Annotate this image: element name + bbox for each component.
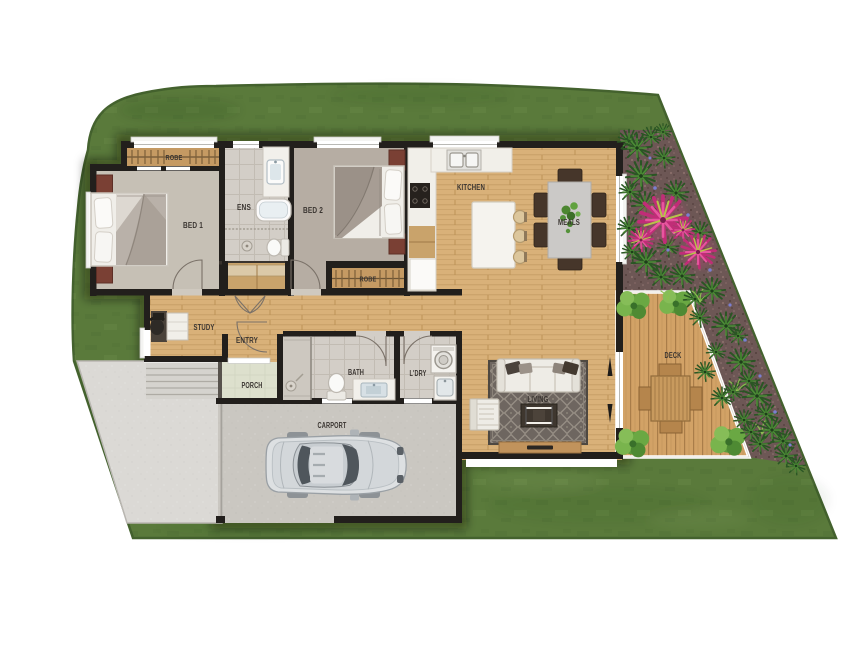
svg-text:ROBE: ROBE bbox=[360, 277, 377, 284]
svg-text:KITCHEN: KITCHEN bbox=[457, 183, 485, 192]
svg-text:LIVING: LIVING bbox=[528, 395, 549, 404]
svg-text:CARPORT: CARPORT bbox=[318, 421, 347, 430]
svg-text:STUDY: STUDY bbox=[194, 323, 215, 332]
svg-text:PORCH: PORCH bbox=[242, 381, 263, 390]
svg-text:DECK: DECK bbox=[665, 351, 682, 360]
svg-text:ROBE: ROBE bbox=[166, 155, 183, 162]
svg-text:L'DRY: L'DRY bbox=[410, 369, 427, 378]
svg-text:ENTRY: ENTRY bbox=[236, 336, 258, 345]
svg-text:ENS: ENS bbox=[237, 203, 251, 212]
svg-text:BED 2: BED 2 bbox=[303, 206, 323, 215]
svg-text:BATH: BATH bbox=[348, 368, 364, 377]
svg-text:BED 1: BED 1 bbox=[183, 221, 203, 230]
svg-text:MEALS: MEALS bbox=[558, 218, 580, 227]
